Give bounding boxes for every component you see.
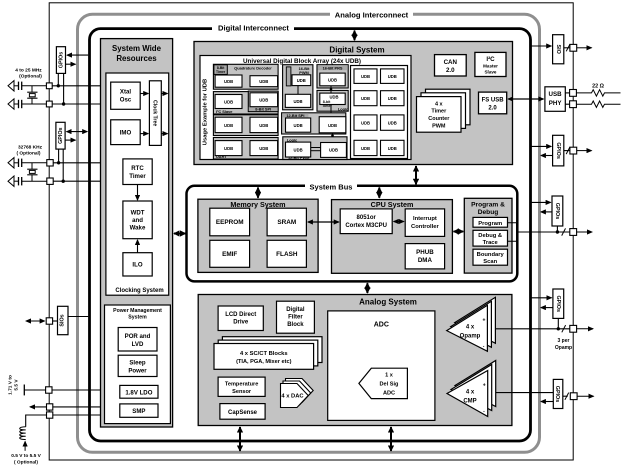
svg-text:Trace: Trace: [483, 240, 499, 246]
svg-text:Debug &: Debug &: [478, 233, 502, 239]
svg-text:IMO: IMO: [120, 130, 132, 137]
svg-text:Opamp: Opamp: [460, 333, 481, 339]
svg-text:GPIOs: GPIOs: [554, 203, 560, 219]
svg-text:FLASH: FLASH: [276, 251, 298, 258]
svg-text:4 x SC/CT Blocks: 4 x SC/CT Blocks: [240, 351, 288, 357]
svg-text:12-Bit SPI: 12-Bit SPI: [286, 113, 304, 118]
svg-text:USB: USB: [549, 91, 563, 98]
svg-text:1.71 V to: 1.71 V to: [8, 375, 14, 395]
svg-text:UDB: UDB: [224, 79, 233, 84]
svg-text:5.5 V: 5.5 V: [14, 379, 20, 391]
svg-text:I²C Slave: I²C Slave: [216, 109, 233, 114]
svg-text:Interrupt: Interrupt: [413, 216, 437, 222]
svg-text:Power: Power: [128, 368, 147, 375]
svg-text:GPIOs: GPIOs: [59, 52, 65, 68]
svg-text:Debug: Debug: [478, 209, 499, 216]
svg-text:Block: Block: [287, 322, 304, 328]
svg-text:CapSense: CapSense: [228, 410, 258, 416]
svg-text:Timer: Timer: [431, 109, 447, 115]
svg-text:UDB: UDB: [328, 77, 337, 82]
svg-text:SRAM: SRAM: [277, 219, 296, 226]
svg-text:16-Bit PRS: 16-Bit PRS: [323, 66, 343, 71]
svg-text:Sleep: Sleep: [129, 360, 146, 367]
svg-text:UDB: UDB: [361, 120, 370, 125]
svg-text:PHUB: PHUB: [416, 249, 434, 256]
svg-text:System Wide: System Wide: [112, 44, 162, 53]
svg-text:1 x: 1 x: [385, 373, 394, 379]
svg-text:SIO: SIO: [555, 45, 561, 54]
svg-text:ADC: ADC: [383, 390, 395, 396]
svg-text:Clocking System: Clocking System: [115, 288, 163, 294]
svg-text:12-Bit PWM: 12-Bit PWM: [288, 155, 309, 160]
svg-text:FS USB: FS USB: [482, 97, 505, 103]
svg-text:Analog System: Analog System: [359, 298, 417, 307]
svg-text:Program: Program: [478, 221, 502, 227]
svg-text:UDB: UDB: [388, 146, 397, 151]
svg-text:UDB: UDB: [388, 74, 397, 79]
svg-text:UDB: UDB: [224, 146, 233, 151]
svg-text:Osc: Osc: [120, 97, 132, 104]
svg-text:UDB: UDB: [361, 96, 370, 101]
svg-text:LCD Direct: LCD Direct: [225, 312, 256, 318]
svg-text:UDB: UDB: [259, 123, 268, 128]
svg-text:32768 KHz: 32768 KHz: [18, 145, 43, 151]
svg-text:Analog Interconnect: Analog Interconnect: [335, 10, 409, 19]
svg-text:GPIOs: GPIOs: [555, 295, 561, 311]
svg-text:2.0: 2.0: [446, 67, 455, 74]
svg-text:Temperature: Temperature: [225, 381, 258, 387]
svg-text:Logic: Logic: [338, 106, 349, 111]
svg-text:I²C: I²C: [486, 56, 495, 63]
svg-text:UDB: UDB: [297, 78, 306, 83]
svg-text:ADC: ADC: [374, 322, 389, 329]
svg-text:(Optional): (Optional): [19, 73, 42, 79]
svg-text:4 x: 4 x: [435, 101, 444, 107]
svg-text:UDB: UDB: [294, 148, 303, 153]
svg-text:4 x: 4 x: [466, 389, 475, 395]
svg-text:Cortex M3CPU: Cortex M3CPU: [345, 223, 387, 229]
svg-text:Clock Tree: Clock Tree: [152, 100, 158, 126]
svg-text:WDT: WDT: [131, 210, 145, 217]
svg-text:UDB: UDB: [388, 96, 397, 101]
svg-text:Program &: Program &: [471, 201, 505, 208]
svg-text:UART: UART: [216, 154, 227, 159]
svg-text:DMA: DMA: [418, 257, 433, 264]
svg-text:UDB: UDB: [293, 99, 302, 104]
svg-text:Power Management: Power Management: [113, 308, 162, 314]
svg-text:UDB: UDB: [259, 98, 268, 103]
svg-text:SMP: SMP: [132, 408, 145, 415]
svg-text:UDB: UDB: [224, 123, 233, 128]
svg-text:Timer: Timer: [129, 173, 146, 180]
svg-text:Scan: Scan: [483, 259, 497, 265]
svg-text:Controller: Controller: [411, 224, 439, 230]
svg-text:PWM: PWM: [432, 123, 446, 129]
svg-text:System Bus: System Bus: [310, 183, 353, 192]
svg-text:EEPROM: EEPROM: [216, 219, 244, 226]
svg-text:+: +: [483, 318, 486, 324]
svg-text:and: and: [132, 217, 143, 224]
svg-text:EMIF: EMIF: [222, 251, 237, 258]
svg-text:3 per: 3 per: [558, 338, 570, 344]
svg-text:CPU System: CPU System: [371, 200, 414, 209]
svg-text:8051or: 8051or: [357, 215, 377, 221]
svg-text:Digital Interconnect: Digital Interconnect: [218, 24, 289, 33]
svg-text:0.5 V to 5.5 V: 0.5 V to 5.5 V: [11, 453, 41, 459]
svg-text:( Optional): ( Optional): [17, 150, 41, 156]
svg-text:UDB: UDB: [294, 123, 303, 128]
svg-text:1.8V LDO: 1.8V LDO: [125, 390, 152, 397]
svg-text:UDB: UDB: [329, 148, 338, 153]
svg-text:System: System: [128, 315, 147, 321]
svg-text:SIOs: SIOs: [60, 314, 66, 326]
svg-text:UDB: UDB: [361, 74, 370, 79]
svg-text:Wake: Wake: [130, 225, 146, 232]
svg-text:Digital System: Digital System: [329, 46, 384, 55]
svg-text:Xtal: Xtal: [120, 89, 131, 96]
svg-text:PHY: PHY: [549, 100, 563, 107]
svg-text:CMP: CMP: [463, 398, 476, 404]
svg-text:UDB: UDB: [361, 146, 370, 151]
svg-text:Resources: Resources: [116, 54, 157, 63]
svg-text:4 x: 4 x: [466, 324, 475, 330]
svg-text:POR and: POR and: [125, 333, 151, 340]
svg-text:GPIOs: GPIOs: [554, 386, 560, 402]
svg-text:UDB: UDB: [329, 95, 338, 100]
svg-text:Master: Master: [483, 64, 498, 69]
svg-text:Counter: Counter: [428, 116, 450, 122]
svg-text:LVD: LVD: [132, 341, 144, 348]
svg-text:CAN: CAN: [444, 59, 458, 66]
svg-text:22 Ω: 22 Ω: [592, 83, 604, 89]
svg-text:GPIOs: GPIOs: [58, 127, 64, 143]
svg-text:Filter: Filter: [288, 315, 303, 321]
svg-text:UDB: UDB: [388, 120, 397, 125]
svg-text:UDB: UDB: [259, 146, 268, 151]
svg-text:ILO: ILO: [132, 262, 142, 269]
svg-text:( Optional): ( Optional): [14, 459, 38, 465]
svg-text:Timer: Timer: [216, 70, 226, 74]
svg-text:+: +: [483, 383, 486, 389]
svg-text:Boundary: Boundary: [477, 252, 505, 258]
svg-text:Opamp: Opamp: [555, 345, 572, 351]
svg-text:4 x DAC: 4 x DAC: [281, 394, 304, 400]
svg-text:Sensor: Sensor: [232, 389, 252, 395]
svg-text:(TIA, PGA, Mixer etc): (TIA, PGA, Mixer etc): [236, 359, 291, 365]
svg-text:2.0: 2.0: [488, 105, 497, 111]
svg-text:RTC: RTC: [131, 165, 144, 172]
svg-text:UDB: UDB: [224, 99, 233, 104]
svg-text:4 to 25 MHz: 4 to 25 MHz: [15, 68, 42, 74]
svg-text:UDB: UDB: [328, 123, 337, 128]
svg-text:Drive: Drive: [233, 320, 249, 326]
svg-text:GPIOs: GPIOs: [555, 142, 561, 158]
svg-text:Slave: Slave: [484, 69, 496, 74]
svg-text:Digital: Digital: [286, 307, 305, 313]
svg-text:Usage Example for UDB: Usage Example for UDB: [203, 79, 209, 145]
svg-text:Del Sig: Del Sig: [380, 382, 400, 388]
svg-text:Quadrature Decoder: Quadrature Decoder: [234, 66, 272, 71]
svg-text:UDB: UDB: [259, 79, 268, 84]
